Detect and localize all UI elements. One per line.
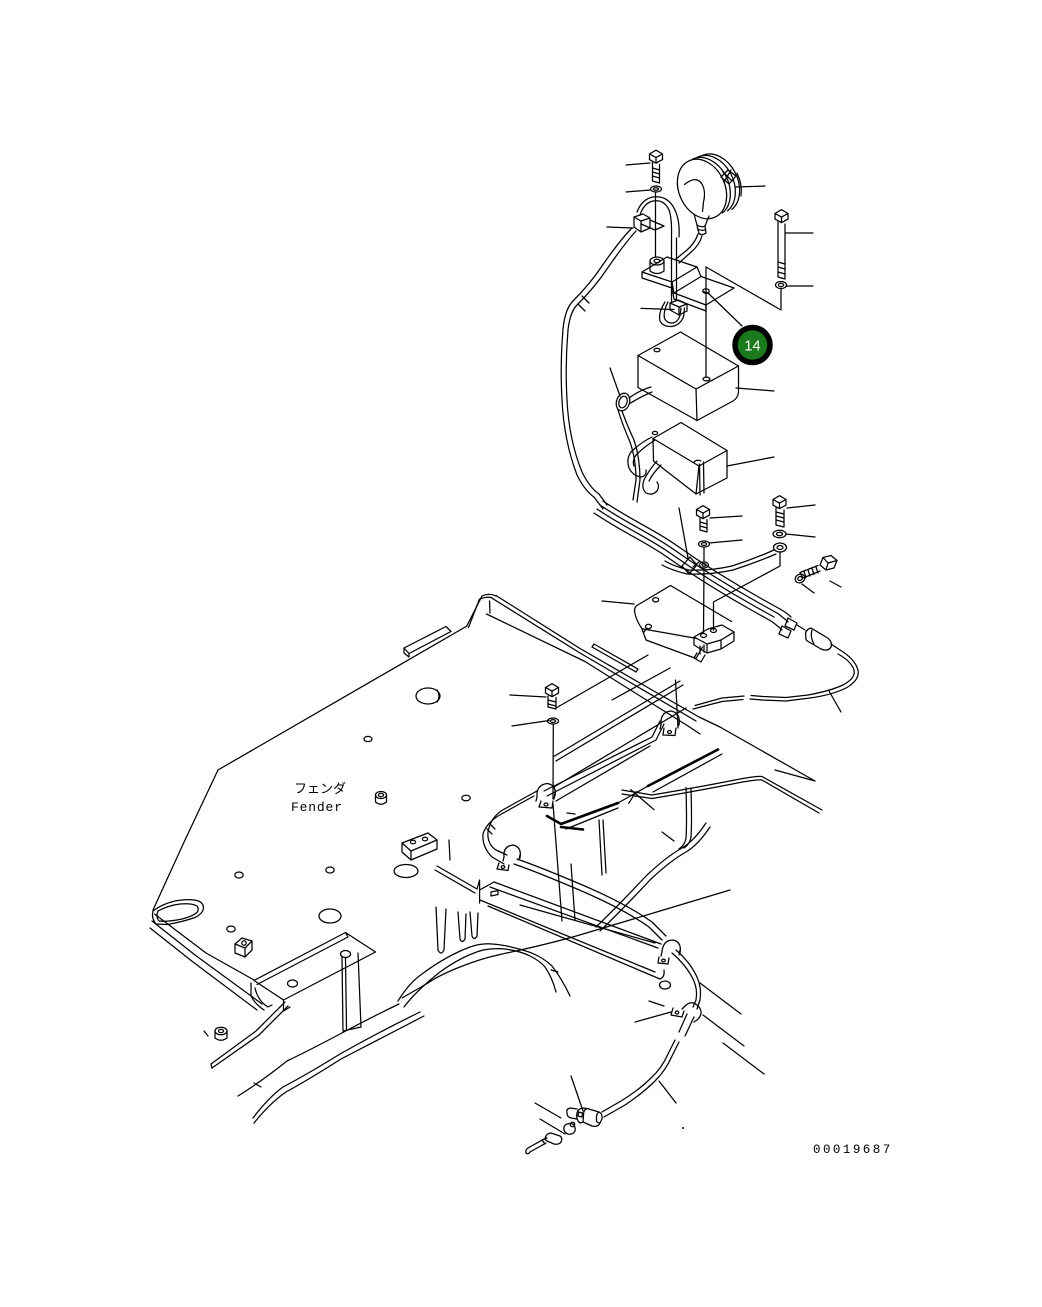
svg-text:00019687: 00019687 <box>813 1143 893 1157</box>
svg-text:フェンダ: フェンダ <box>294 781 346 796</box>
svg-text:Fender: Fender <box>291 800 343 815</box>
svg-text:14: 14 <box>744 339 760 355</box>
